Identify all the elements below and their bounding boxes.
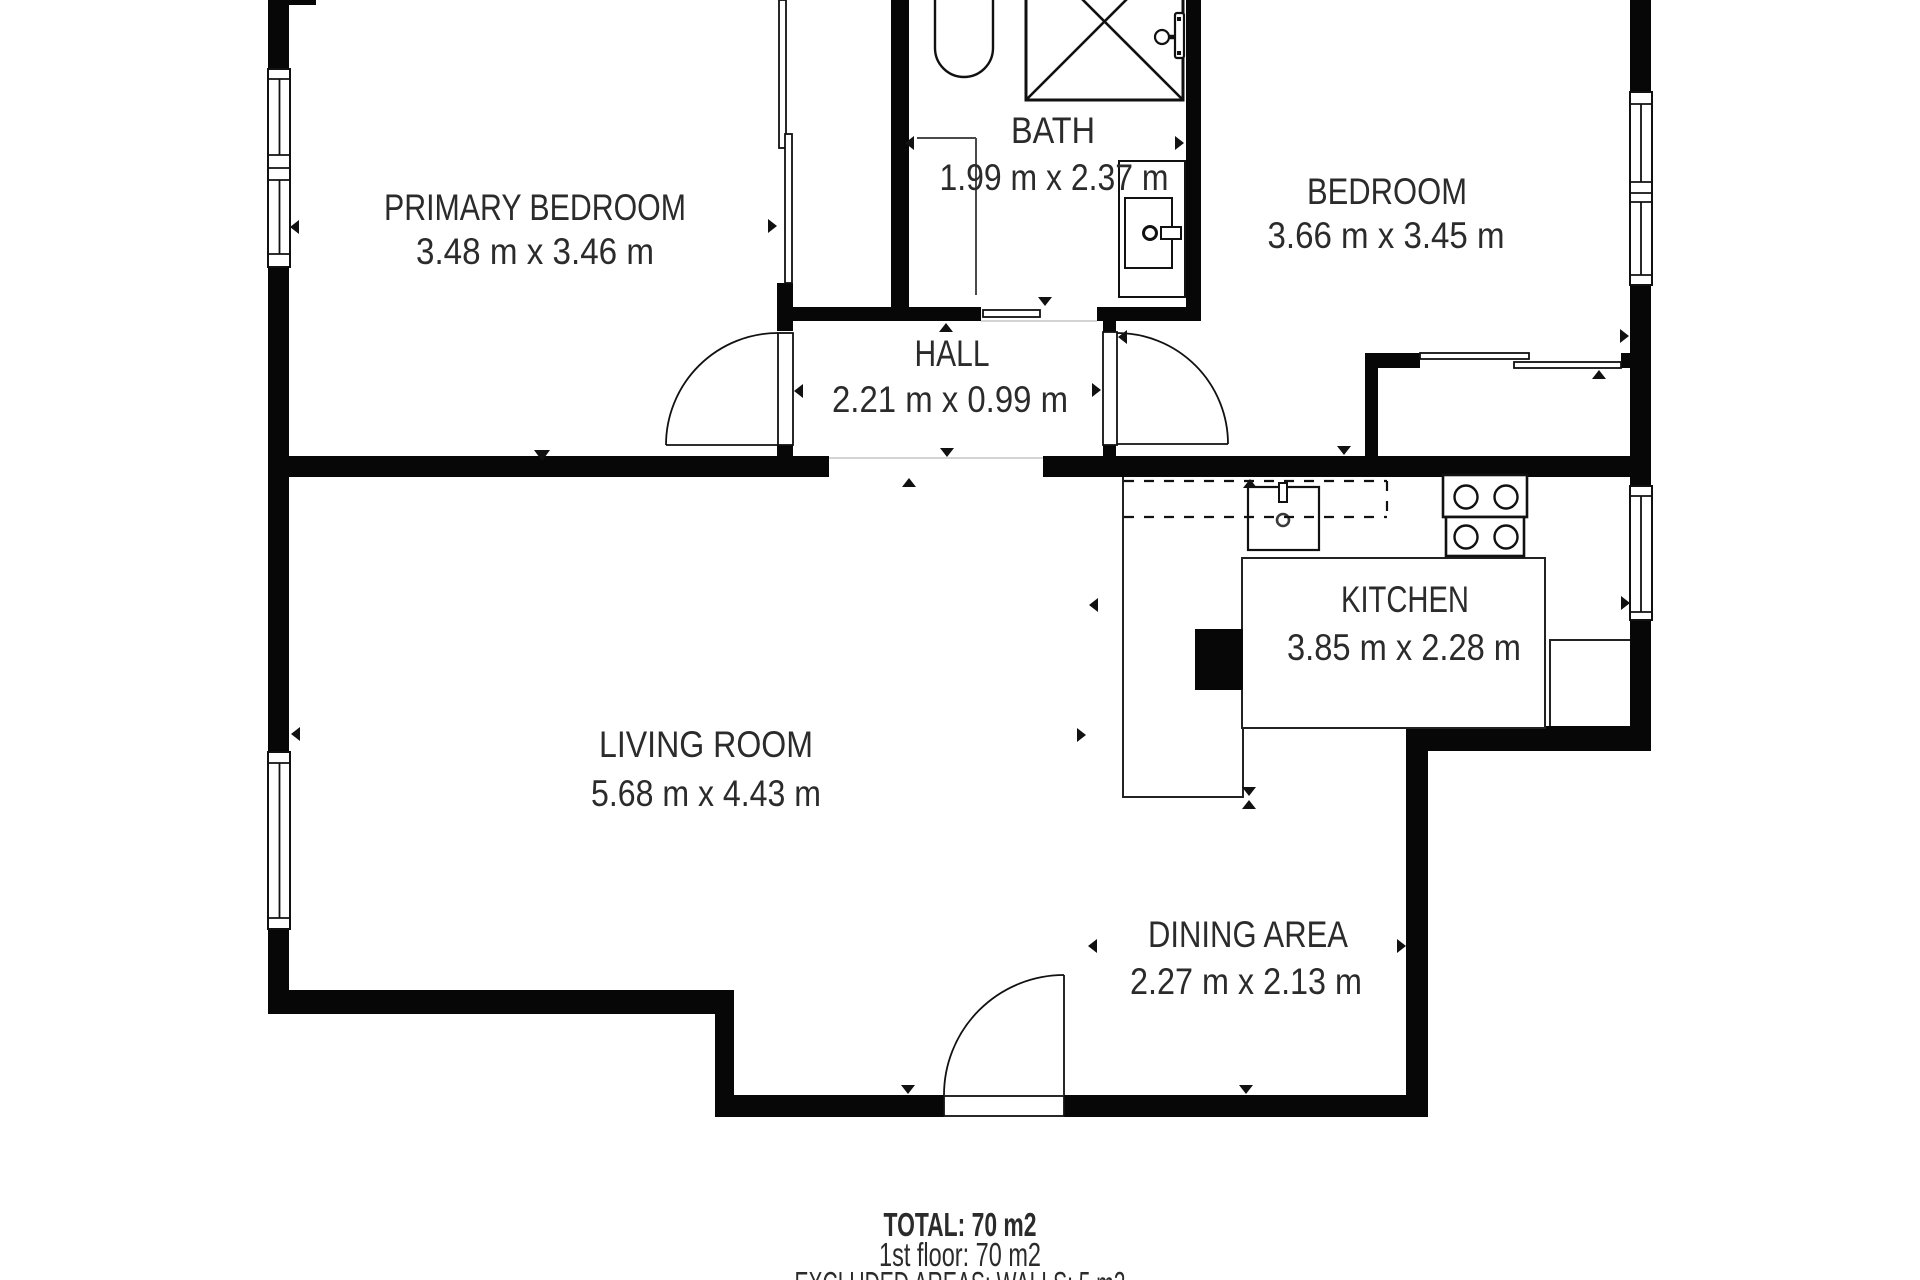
svg-text:DINING AREA: DINING AREA — [1148, 914, 1348, 955]
svg-text:PRIMARY BEDROOM: PRIMARY BEDROOM — [384, 187, 686, 228]
svg-text:5.68 m x 4.43 m: 5.68 m x 4.43 m — [591, 773, 821, 814]
svg-text:KITCHEN: KITCHEN — [1341, 579, 1469, 620]
svg-text:EXCLUDED AREAS: WALLS: 5 m2: EXCLUDED AREAS: WALLS: 5 m2 — [795, 1265, 1126, 1280]
svg-text:HALL: HALL — [915, 333, 990, 374]
svg-text:BATH: BATH — [1011, 110, 1095, 151]
svg-text:LIVING ROOM: LIVING ROOM — [599, 724, 813, 765]
svg-text:2.21 m x 0.99 m: 2.21 m x 0.99 m — [832, 379, 1068, 420]
svg-text:3.66 m x 3.45 m: 3.66 m x 3.45 m — [1268, 215, 1505, 256]
svg-text:BEDROOM: BEDROOM — [1307, 171, 1467, 212]
svg-text:2.27 m x 2.13 m: 2.27 m x 2.13 m — [1130, 961, 1362, 1002]
svg-text:3.48 m x 3.46 m: 3.48 m x 3.46 m — [416, 231, 654, 272]
svg-text:1.99 m x 2.37 m: 1.99 m x 2.37 m — [940, 157, 1169, 198]
svg-text:3.85 m x 2.28 m: 3.85 m x 2.28 m — [1287, 627, 1521, 668]
